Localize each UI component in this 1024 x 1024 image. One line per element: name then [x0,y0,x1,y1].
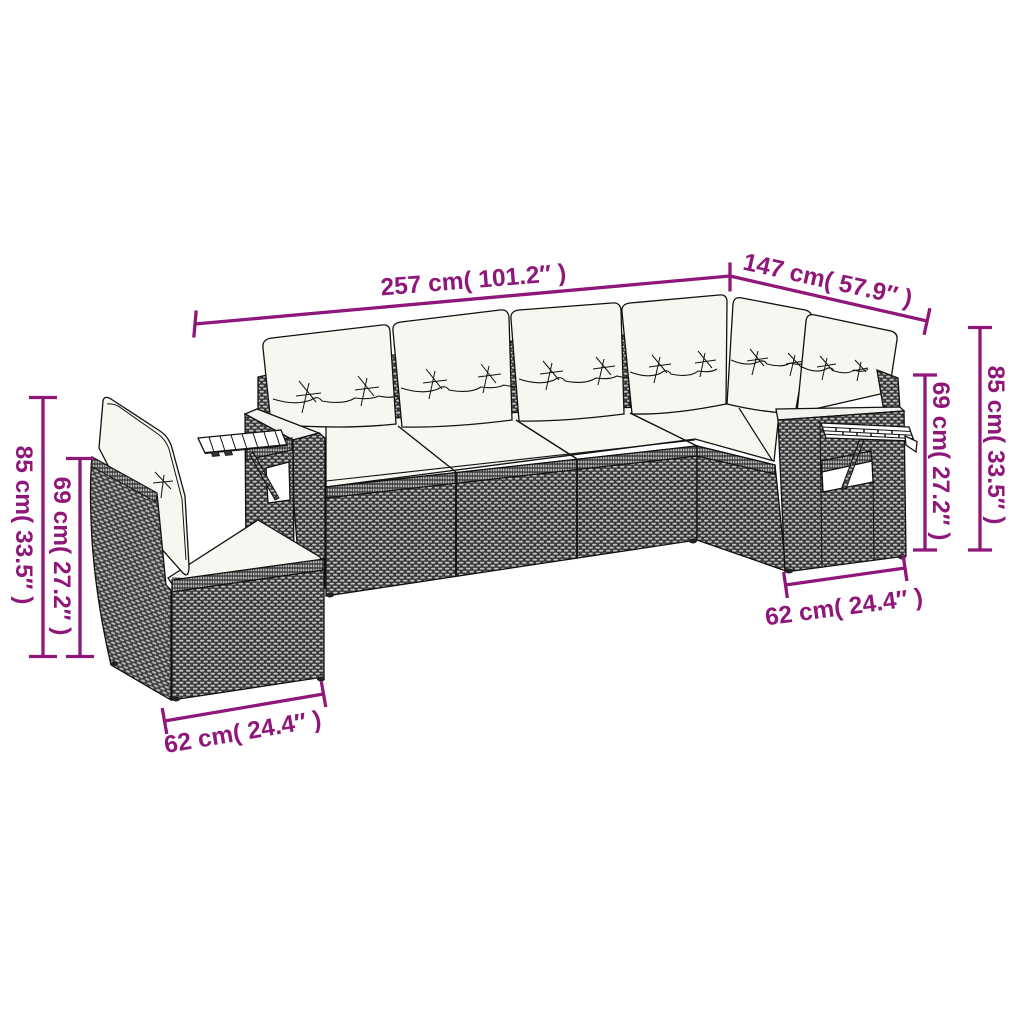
svg-text:69 cm( 27.2″ ): 69 cm( 27.2″ ) [48,477,75,636]
svg-text:69 cm( 27.2″ ): 69 cm( 27.2″ ) [927,382,954,541]
svg-text:85 cm( 33.5″ ): 85 cm( 33.5″ ) [10,446,37,605]
svg-text:85 cm( 33.5″ ): 85 cm( 33.5″ ) [982,366,1009,525]
